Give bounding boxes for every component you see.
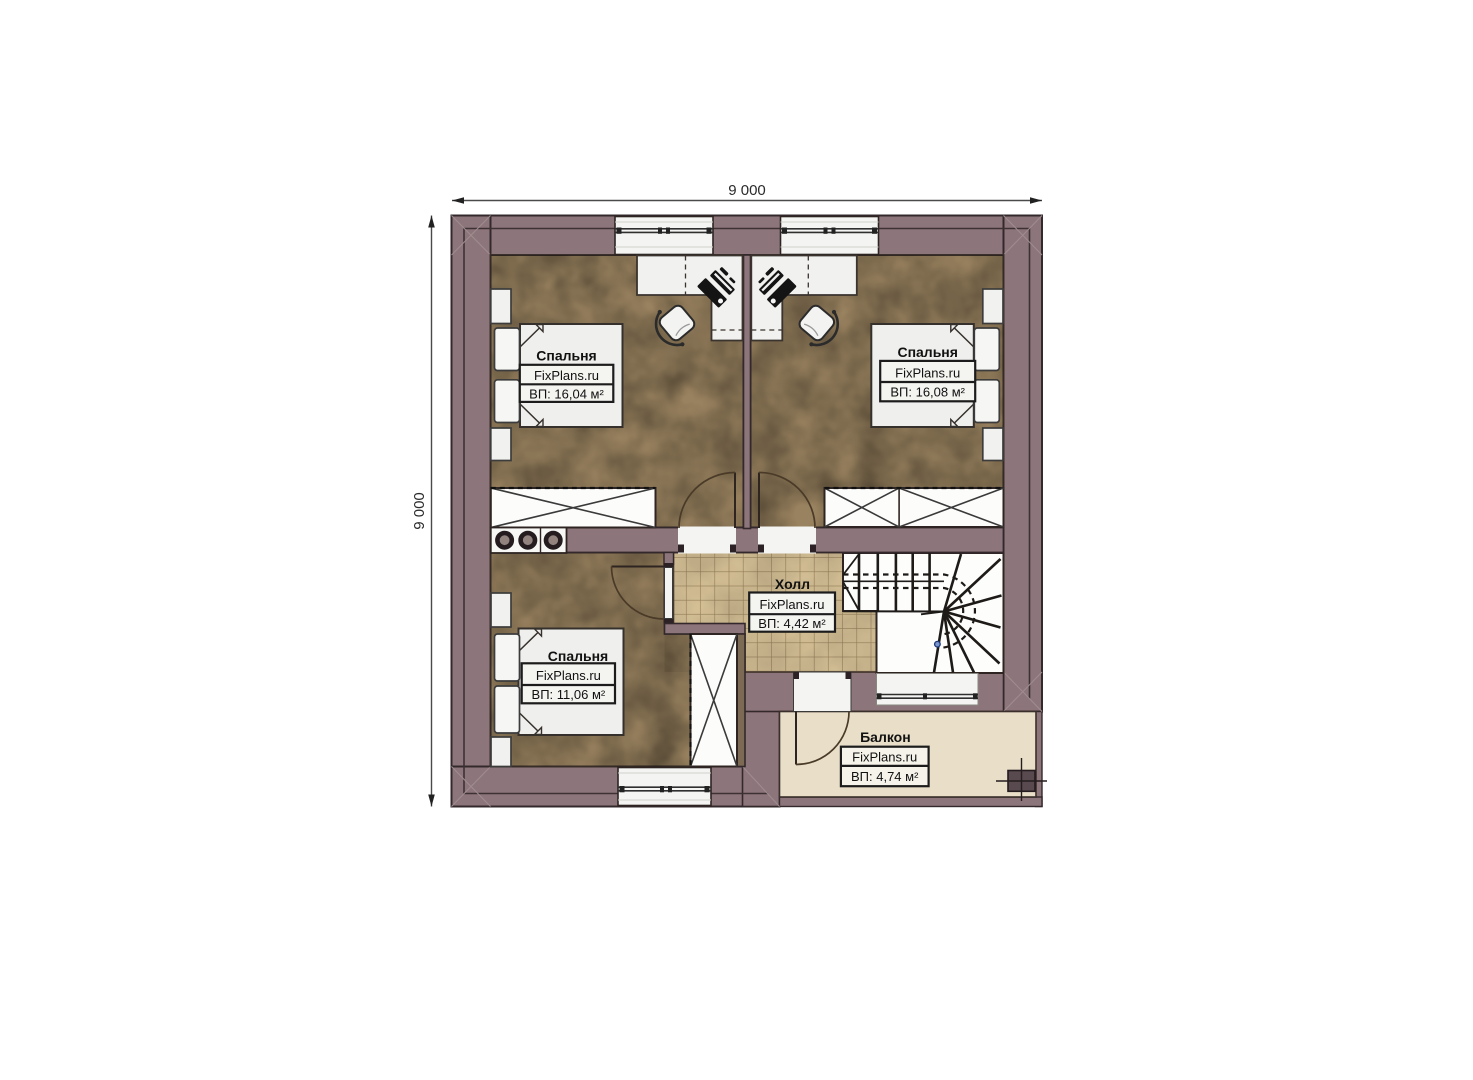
- svg-text:9 000: 9 000: [728, 182, 766, 199]
- svg-text:ВП: 4,74 м²: ВП: 4,74 м²: [851, 769, 919, 784]
- svg-text:ВП: 16,04 м²: ВП: 16,04 м²: [529, 387, 604, 402]
- svg-text:9 000: 9 000: [411, 492, 428, 530]
- svg-text:Балкон: Балкон: [860, 729, 911, 745]
- svg-text:ВП: 11,06 м²: ВП: 11,06 м²: [532, 687, 606, 702]
- svg-text:FixPlans.ru: FixPlans.ru: [852, 750, 917, 765]
- svg-text:Спальня: Спальня: [536, 348, 596, 364]
- svg-text:Спальня: Спальня: [548, 648, 608, 664]
- svg-text:ВП: 16,08 м²: ВП: 16,08 м²: [890, 385, 965, 400]
- svg-text:Холл: Холл: [775, 576, 810, 592]
- svg-text:ВП: 4,42 м²: ВП: 4,42 м²: [758, 616, 826, 631]
- svg-text:FixPlans.ru: FixPlans.ru: [895, 366, 960, 381]
- svg-text:FixPlans.ru: FixPlans.ru: [534, 368, 599, 383]
- svg-text:FixPlans.ru: FixPlans.ru: [759, 597, 824, 612]
- svg-text:Спальня: Спальня: [897, 344, 957, 360]
- svg-text:FixPlans.ru: FixPlans.ru: [536, 668, 601, 683]
